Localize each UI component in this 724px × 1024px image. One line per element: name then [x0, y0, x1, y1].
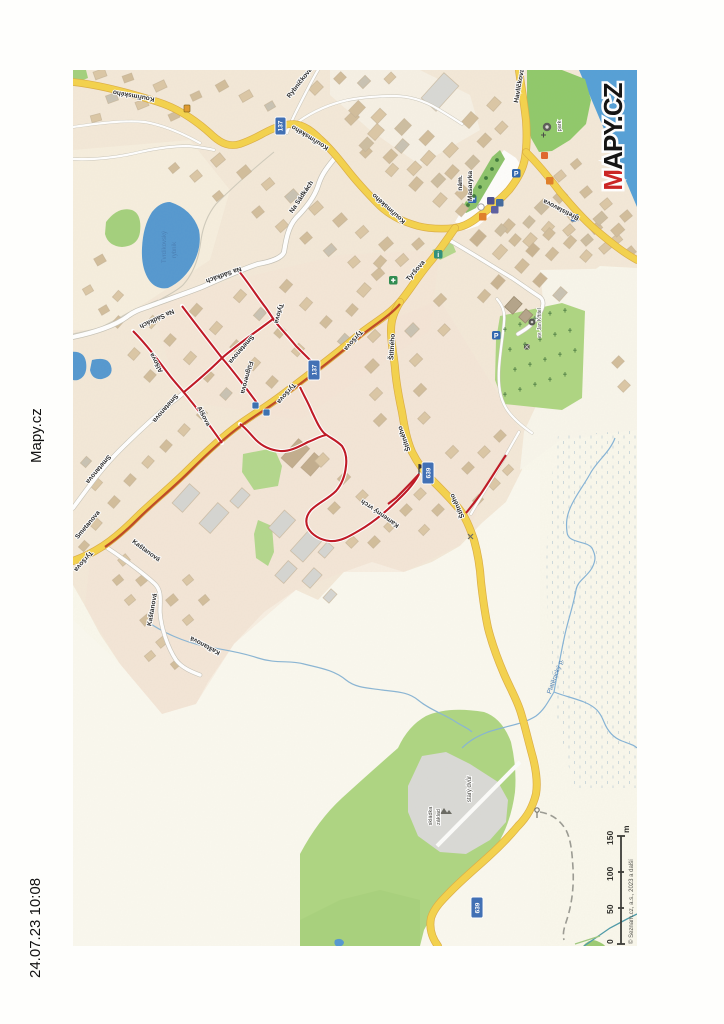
svg-text:24.07.23 10:08: 24.07.23 10:08	[27, 878, 44, 978]
svg-text:Mapy.cz: Mapy.cz	[28, 408, 45, 463]
